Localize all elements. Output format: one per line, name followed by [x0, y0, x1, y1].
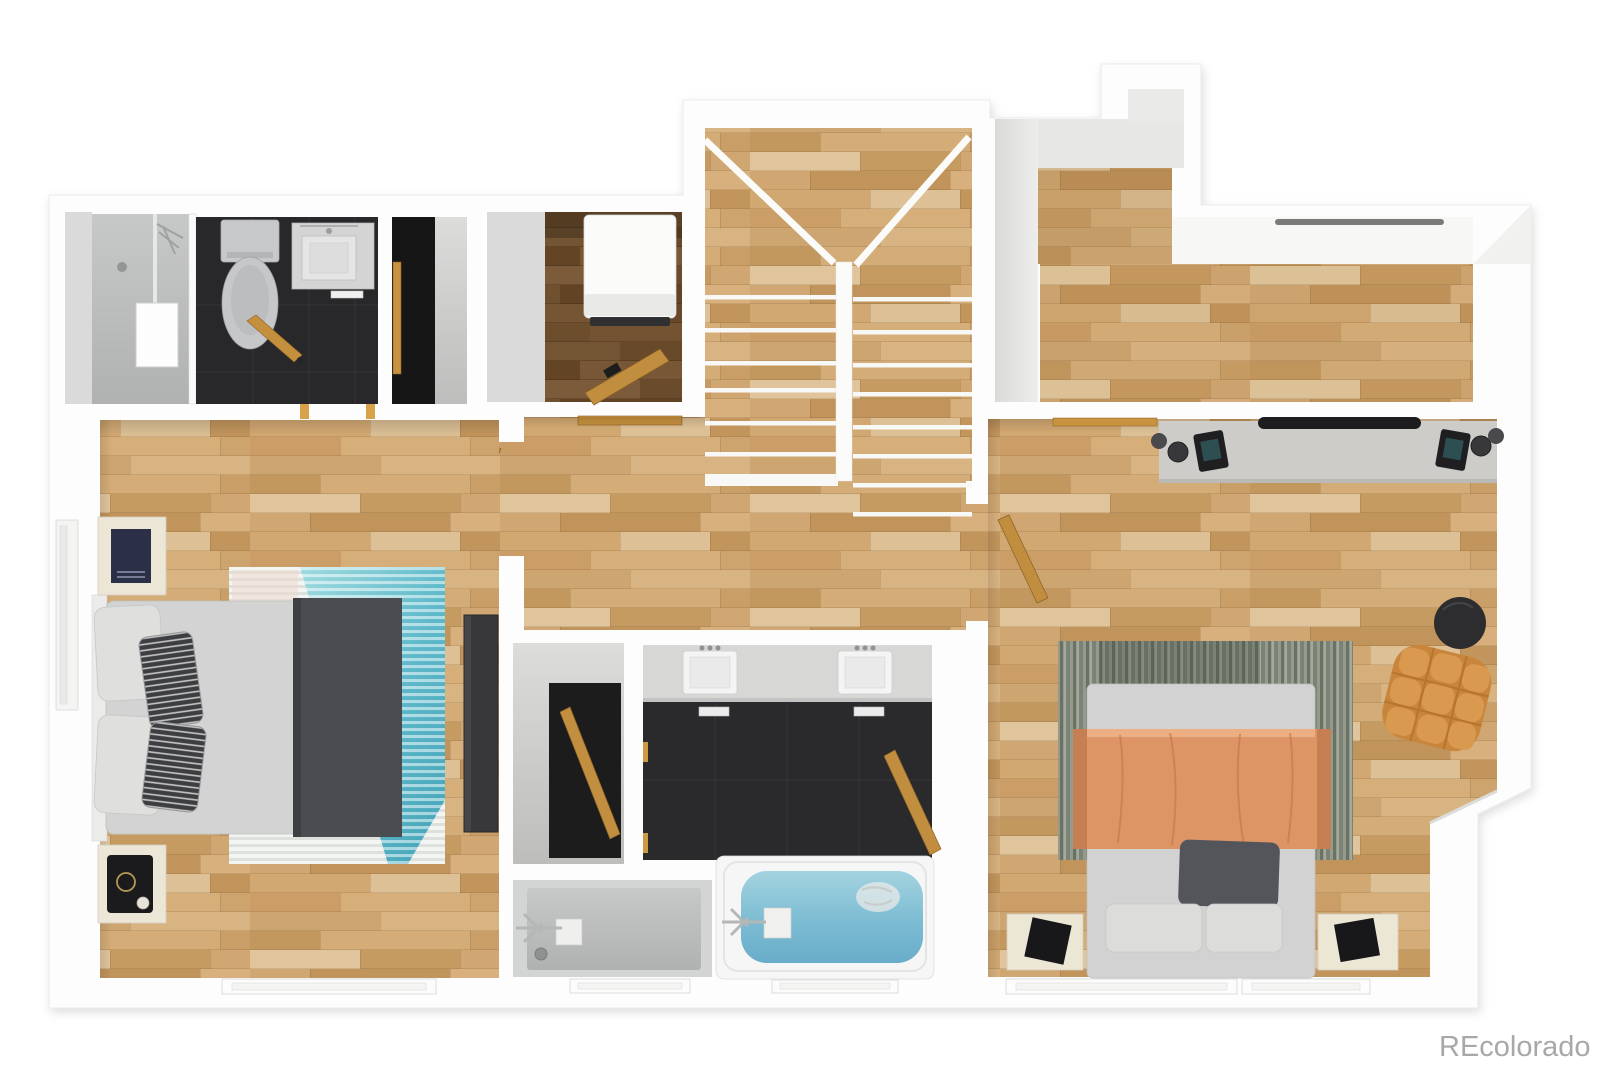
svg-text:REcolorado: REcolorado	[1439, 1031, 1591, 1063]
